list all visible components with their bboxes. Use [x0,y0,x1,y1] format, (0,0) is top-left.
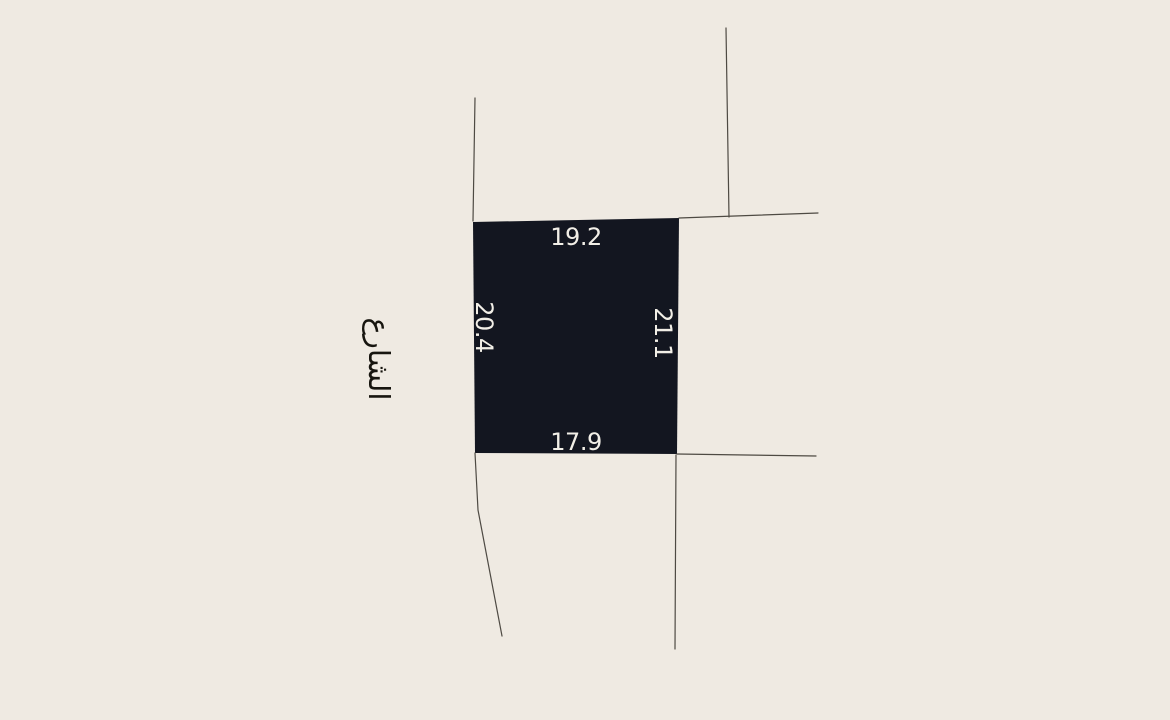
boundary-line-top-right-horizontal [679,213,818,218]
dimension-label-bottom: 17.9 [550,428,601,456]
boundary-line-bottom-left [475,453,502,636]
boundary-line-bottom-right-vertical [675,455,676,649]
dimension-label-left: 20.4 [470,301,498,352]
dimension-label-right: 21.1 [649,307,677,358]
parcel-map-canvas: 19.2 20.4 21.1 17.9 الشارع [0,0,1170,720]
parcel-map: 19.2 20.4 21.1 17.9 الشارع [0,0,1170,720]
street-name-label: الشارع [362,318,396,401]
boundary-line-top-left [473,98,475,221]
dimension-label-top: 19.2 [550,223,601,251]
parcel-shape[interactable] [473,218,679,454]
boundary-line-top-right-vertical [726,28,729,217]
boundary-line-bottom-right-horizontal [677,454,816,456]
